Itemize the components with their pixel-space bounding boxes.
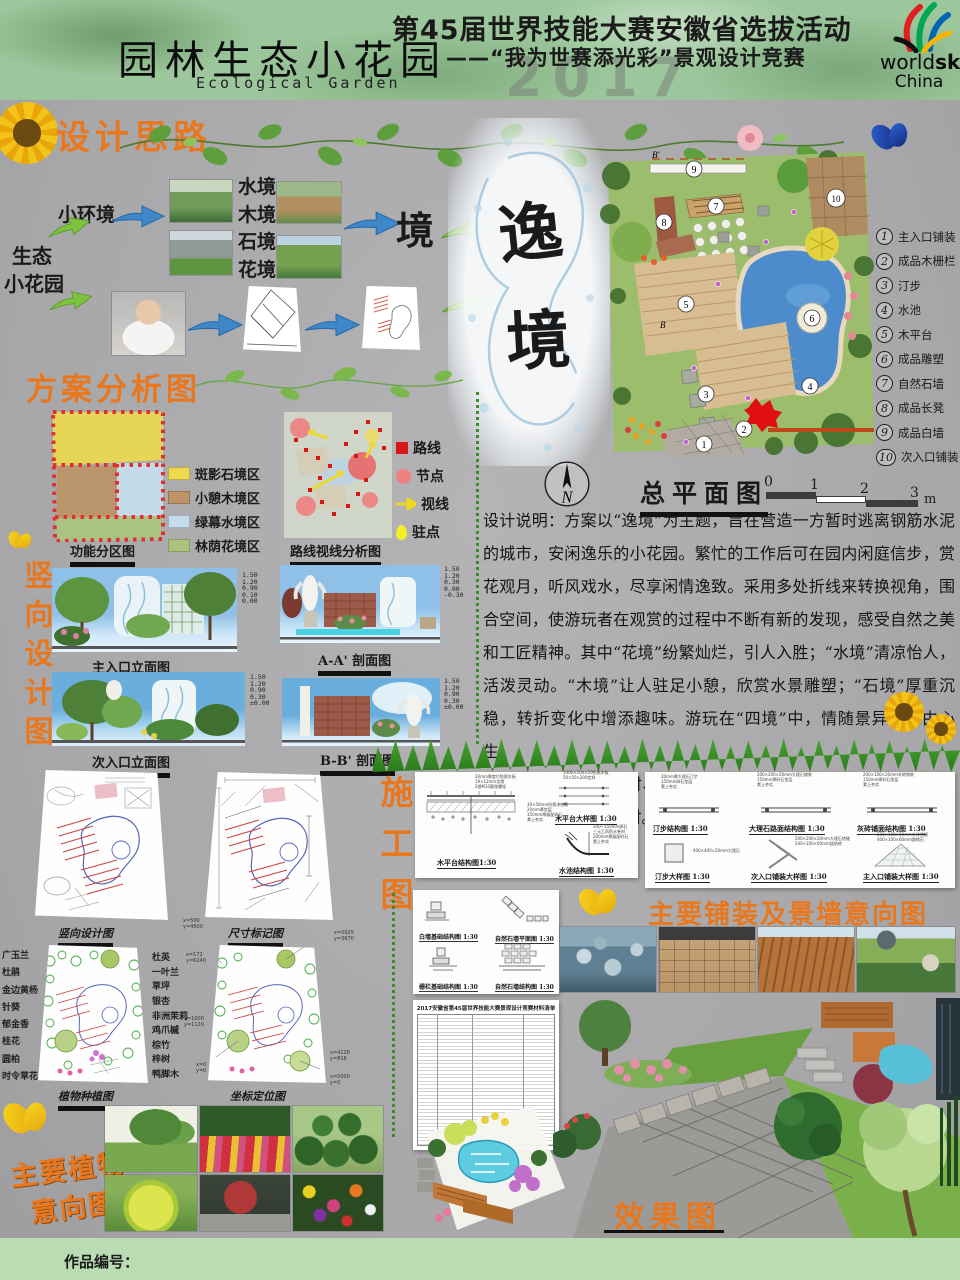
- zone-label: 绿幕水境区: [195, 512, 260, 531]
- poster: 园林生态小花园 Ecological Garden 2017 第45届世界技能大…: [0, 0, 960, 1280]
- yellow-butterfly-icon: [2, 1094, 58, 1145]
- plant-labels-right: 杜英 一叶兰 草坪 银杏 非洲茉莉 鸡爪槭 棕竹 梓树 鸭脚木: [152, 950, 188, 1080]
- svg-text:5: 5: [684, 300, 689, 311]
- env-label-flower: 花境: [238, 255, 276, 282]
- plant-label: 杜鹃: [2, 965, 38, 978]
- header: 园林生态小花园 Ecological Garden 2017 第45届世界技能大…: [0, 0, 960, 100]
- photo-plant-golden-shrub: [105, 1175, 197, 1231]
- legend-label: 成品雕塑: [898, 351, 944, 367]
- legend-label: 自然石墙: [898, 376, 944, 392]
- env-label-wood: 木境: [238, 200, 276, 227]
- logo-china: China: [880, 72, 958, 92]
- legend-num: 10: [876, 449, 896, 466]
- green-arrow-icon: [44, 208, 93, 243]
- worldskills-swoosh-icon: [890, 1, 952, 53]
- plant-label: 鸭脚木: [152, 1067, 188, 1080]
- cad-planting-plan: [38, 945, 148, 1083]
- coordinate-callout: x=500 y=4500: [183, 918, 203, 930]
- env-label-water: 水境: [238, 172, 276, 199]
- legend-num: 1: [876, 228, 893, 245]
- elevation-ticks: 1.50 1.20 0.90 0.30 ±0.00: [444, 678, 464, 744]
- entry-number-label: 作品编号：: [64, 1251, 139, 1272]
- svg-text:4: 4: [808, 382, 813, 393]
- plant-label: 棕竹: [152, 1038, 188, 1051]
- legend-num: 3: [876, 277, 893, 294]
- blue-arrow-icon: [186, 310, 244, 337]
- caption-planting-plan: 植物种植图: [58, 1088, 113, 1107]
- caption-secondary-entrance-elevation: 次入口立面图: [92, 752, 170, 773]
- legend-item: 3汀步: [876, 277, 959, 294]
- legend-num: 5: [876, 326, 893, 343]
- zone-label: 林荫花境区: [195, 536, 260, 555]
- caption-coordinate-plan: 坐标定位图: [230, 1088, 285, 1107]
- photo-garden-wall: [857, 927, 955, 992]
- poster-title-en: Ecological Garden: [196, 74, 401, 92]
- logo-world: world: [880, 50, 935, 74]
- flow-node-eco: 生态: [12, 240, 52, 269]
- legend-label: 成品白墙: [898, 425, 944, 441]
- legend-num: 4: [876, 302, 893, 319]
- worldskills-logo-text: worldskills China: [880, 52, 958, 92]
- photo-wood-bridge: [277, 182, 341, 223]
- plant-label: 杜英: [152, 950, 188, 963]
- detail-note: 200×100×50mm灰砖错缝 400×100×60mm路缘石: [877, 832, 928, 842]
- caption-deck-structure: 木平台结构图1:30: [437, 858, 496, 869]
- photo-plant-topiary: [293, 1106, 383, 1172]
- caption-grading-plan: 竖向设计图: [58, 925, 113, 944]
- cad-dimension-plan: [205, 772, 333, 920]
- caption-stepping-structure: 汀步结构图 1:30: [653, 824, 708, 835]
- plant-label: 针葵: [2, 1000, 38, 1013]
- detail-note: 1400×200×20防腐木板 50×50×200定样: [563, 770, 609, 780]
- svg-text:9: 9: [692, 165, 697, 176]
- route-sightline-diagram: [278, 408, 398, 542]
- caption-white-wall-foundation: 白墙基础结构图 1:30: [419, 932, 478, 942]
- caption-stone-wall-structure: 自然石墙结构图 1:30: [495, 982, 554, 992]
- section-title-paving-intent: 主要铺装及景墙意向图: [648, 894, 928, 931]
- scale-tick: 1: [810, 477, 819, 493]
- legend-item: 2成品木栅栏: [876, 253, 959, 270]
- yellow-butterfly-icon: [578, 882, 625, 925]
- elevation-ticks: 1.50 1.20 0.30 0.00 -0.30: [444, 566, 464, 640]
- scale-tick: 0: [764, 474, 773, 490]
- logo-skills: skills: [935, 50, 960, 74]
- plant-label: 郁金香: [2, 1017, 38, 1030]
- deck-plan-detail-drawing: [557, 784, 617, 810]
- route-label: 路线: [413, 438, 441, 458]
- footer-bar: 作品编号：: [0, 1238, 960, 1280]
- detail-panel-paving: 20mm厚大理石汀步 150mm碎石垫层 素土夯实 汀步结构图 1:30 200…: [645, 772, 955, 888]
- leaf-scroll-decoration: [195, 362, 463, 406]
- legend-item: 9成品白墙: [876, 424, 959, 441]
- sunflower-icon: [926, 714, 956, 744]
- sunflower-icon: [884, 692, 924, 732]
- zone-label: 斑影石境区: [195, 464, 260, 483]
- sketch-concept-lines: [243, 286, 301, 352]
- coordinate-callout: x=4126 y=818: [330, 1050, 350, 1062]
- svg-text:1: 1: [702, 440, 707, 451]
- cad-coordinate-plan: [208, 945, 326, 1083]
- section-b-b: [282, 678, 440, 746]
- caption-pool-structure: 水池结构图 1:30: [559, 866, 614, 877]
- zone-legend-item: 小憩木境区: [168, 488, 260, 507]
- elevation-ticks: 1.50 1.20 0.90 0.30 ±0.00: [250, 674, 270, 744]
- section-marker-b: B: [660, 320, 666, 330]
- route-legend: 路线 节点 视线 驻点: [396, 438, 449, 542]
- legend-label: 木平台: [898, 327, 933, 343]
- scale-tick: 2: [860, 481, 869, 497]
- legend-num: 2: [876, 253, 893, 270]
- zone-legend: 斑影石境区 小憩木境区 绿幕水境区 林荫花境区: [168, 464, 260, 555]
- yellow-butterfly-icon: [9, 531, 35, 553]
- legend-label: 成品木栅栏: [898, 253, 956, 269]
- theme-calligraphy-jing: 境: [504, 288, 573, 383]
- sunflower-icon: [0, 102, 58, 164]
- plant-label: 桂花: [2, 1034, 38, 1047]
- photo-wood-deck: [758, 927, 854, 992]
- elevation-ticks: 1.50 1.20 0.90 0.10 0.00: [242, 572, 258, 648]
- legend-item: 7自然石墙: [876, 375, 959, 392]
- detail-panel-walls: 白墙基础结构图 1:30 自然石墙平面图 1:30 栅栏基础结构图 1:30 自…: [413, 890, 559, 994]
- svg-text:3: 3: [704, 390, 709, 401]
- route-legend-item: 驻点: [396, 522, 449, 542]
- detail-note: 200×200×20mm大理石铺装 150mm厚砂石垫层 素土夯实: [757, 772, 812, 787]
- legend-num: 6: [876, 351, 893, 368]
- rendering-hand-drawn: [415, 1100, 565, 1235]
- sketch-plan-draft: [362, 286, 420, 350]
- scale-bar: 0 1 2 3 m: [764, 474, 936, 508]
- blue-butterfly-icon: [870, 116, 918, 160]
- cad-grading-plan: [35, 770, 168, 920]
- plant-label: 非洲茉莉: [152, 1009, 188, 1022]
- photo-stepping-stones: [560, 927, 656, 992]
- elevation-main-entrance: [52, 568, 237, 652]
- svg-text:8: 8: [662, 218, 667, 229]
- coordinate-callout: x=172 y=6240: [186, 952, 206, 964]
- detail-note: 20mm厚大理石汀步 150mm碎石垫层 素土夯实: [661, 774, 698, 789]
- event-title-line2: ——“我为世赛添光彩”景观设计竞赛: [446, 42, 806, 72]
- ivy-column-decoration: [476, 392, 479, 744]
- route-legend-item: 节点: [396, 466, 449, 486]
- legend-num: 7: [876, 375, 893, 392]
- scale-tick: 3: [910, 485, 919, 501]
- env-labels: 水境 木境 石境 花境: [238, 172, 276, 282]
- plant-label: 银杏: [152, 994, 188, 1007]
- caption-marble-structure: 大理石路面结构图 1:30: [749, 824, 825, 835]
- detail-panel-deck-pool: 30×50mm防腐木龙骨 20mm厚垫层 150mm厚级配碎石 素土夯实 20m…: [415, 772, 638, 878]
- plant-label: 时令草花: [2, 1069, 38, 1082]
- plant-label: 广玉兰: [2, 948, 38, 961]
- section-a-a: [280, 565, 440, 643]
- plant-label: 梓树: [152, 1052, 188, 1065]
- coordinate-callout: x=0 y=0: [196, 1062, 206, 1074]
- photo-plant-palm: [105, 1106, 197, 1172]
- zone-legend-item: 林荫花境区: [168, 536, 260, 555]
- master-plan-drawing: B' B 1 2 3 4 5 6 7 8 9 10: [598, 146, 880, 458]
- plant-label: 鸡爪槭: [152, 1023, 188, 1036]
- legend-item: 10次入口铺装: [876, 449, 959, 466]
- caption-main-paving-detail: 主入口铺装大样图 1:30: [863, 872, 939, 883]
- legend-num: 9: [876, 424, 893, 441]
- detail-note: 200×200×20mm大理石错缝 240×100×60mm烧结砖: [795, 836, 850, 846]
- caption-section-aa: A-A' 剖面图: [318, 650, 391, 671]
- legend-label: 水池: [898, 302, 921, 318]
- compass: N: [543, 460, 591, 508]
- route-label: 节点: [416, 466, 444, 486]
- route-legend-item: 视线: [396, 494, 449, 514]
- blue-arrow-icon: [342, 208, 402, 236]
- theme-calligraphy-yi: 逸: [493, 179, 566, 277]
- design-description-p1: 设计说明：方案以“逸境”为主题，旨在营造一方暂时逃离钢筋水泥的城市，安闲逸乐的小…: [483, 504, 955, 768]
- svg-text:6: 6: [810, 314, 815, 325]
- materials-table-title: 2017安徽省第45届世界技能大赛景观设计竞赛材料清单: [413, 1004, 559, 1012]
- effect-title-underline: [604, 1230, 724, 1233]
- legend-item: 5木平台: [876, 326, 959, 343]
- svg-text:7: 7: [714, 202, 719, 213]
- plan-legend: 1主入口铺装 2成品木栅栏 3汀步 4水池 5木平台 6成品雕塑 7自然石墙 8…: [876, 228, 959, 466]
- caption-stepping-detail: 汀步大样图 1:30: [655, 872, 710, 883]
- photo-water-garden: [170, 180, 232, 222]
- photo-brick-paving: [659, 927, 755, 992]
- svg-text:10: 10: [832, 194, 842, 204]
- function-zone-diagram: [45, 408, 167, 542]
- deck-section-drawing: [423, 782, 523, 842]
- legend-label: 汀步: [898, 278, 921, 294]
- legend-label: 次入口铺装: [901, 449, 959, 465]
- detail-note: 200×100×20mm灰砖铺装 150mm厚砂石垫层 素土夯实: [863, 772, 914, 787]
- caption-function-zones: 功能分区图: [70, 541, 135, 562]
- photo-plant-pansies: [293, 1175, 383, 1231]
- photo-stone-forest: [170, 231, 232, 275]
- route-label: 驻点: [412, 522, 440, 542]
- photo-flower-border: [277, 236, 341, 278]
- legend-item: 1主入口铺装: [876, 228, 959, 245]
- route-legend-item: 路线: [396, 438, 449, 458]
- caption-secondary-paving-detail: 次入口铺装大样图 1:30: [751, 872, 827, 883]
- zone-label: 小憩木境区: [195, 488, 260, 507]
- yellow-arrow-icon: [396, 498, 416, 510]
- legend-num: 8: [876, 400, 893, 417]
- legend-label: 主入口铺装: [898, 229, 956, 245]
- coordinate-callout: x=1000 y=1120: [184, 1016, 204, 1028]
- coordinate-callout: x=5025 y=3670: [334, 930, 354, 942]
- zone-legend-item: 绿幕水境区: [168, 512, 260, 531]
- section-title-analysis: 方案分析图: [26, 364, 201, 409]
- plant-labels-left: 广玉兰 杜鹃 金边黄杨 针葵 郁金香 桂花 圆柏 时令草花: [2, 948, 38, 1082]
- blue-arrow-icon: [110, 202, 166, 228]
- plant-label: 圆柏: [2, 1052, 38, 1065]
- caption-dimension-plan: 尺寸标记图: [228, 925, 283, 944]
- svg-text:2: 2: [742, 425, 747, 436]
- coordinate-callout: x=5000 y=0: [330, 1074, 350, 1086]
- legend-item: 8成品长凳: [876, 400, 959, 417]
- blue-arrow-icon: [303, 310, 361, 337]
- section-marker-b-prime: B': [652, 150, 660, 160]
- caption-fence-foundation: 栅栏基础结构图 1:30: [419, 982, 478, 992]
- photo-designer-framing: [112, 292, 185, 355]
- ivy-column-decoration: [392, 893, 395, 1137]
- elevation-secondary-entrance: [52, 672, 245, 746]
- legend-item: 4水池: [876, 302, 959, 319]
- caption-route-analysis: 路线视线分析图: [290, 541, 381, 562]
- legend-item: 6成品雕塑: [876, 351, 959, 368]
- plant-label: 金边黄杨: [2, 983, 38, 996]
- detail-note: 400×400×20mm大理石: [693, 848, 740, 853]
- env-label-stone: 石境: [238, 227, 276, 254]
- photo-plant-flowerbeds: [200, 1106, 290, 1172]
- route-label: 视线: [421, 494, 449, 514]
- zone-legend-item: 斑影石境区: [168, 464, 260, 483]
- legend-label: 成品长凳: [898, 400, 944, 416]
- detail-note: 100~150mm卵石 三元乙丙防水卷材 200mm厚级配砂石 素土夯实: [593, 824, 628, 844]
- photo-plant-maple-court: [200, 1175, 290, 1231]
- detail-note: 20mm厚度竹防腐木板 19×12mm龙骨 2根M10膨胀螺栓: [475, 774, 516, 789]
- flow-node-jing: 境: [396, 200, 434, 255]
- plant-label: 一叶兰: [152, 965, 188, 978]
- plant-label: 草坪: [152, 979, 188, 992]
